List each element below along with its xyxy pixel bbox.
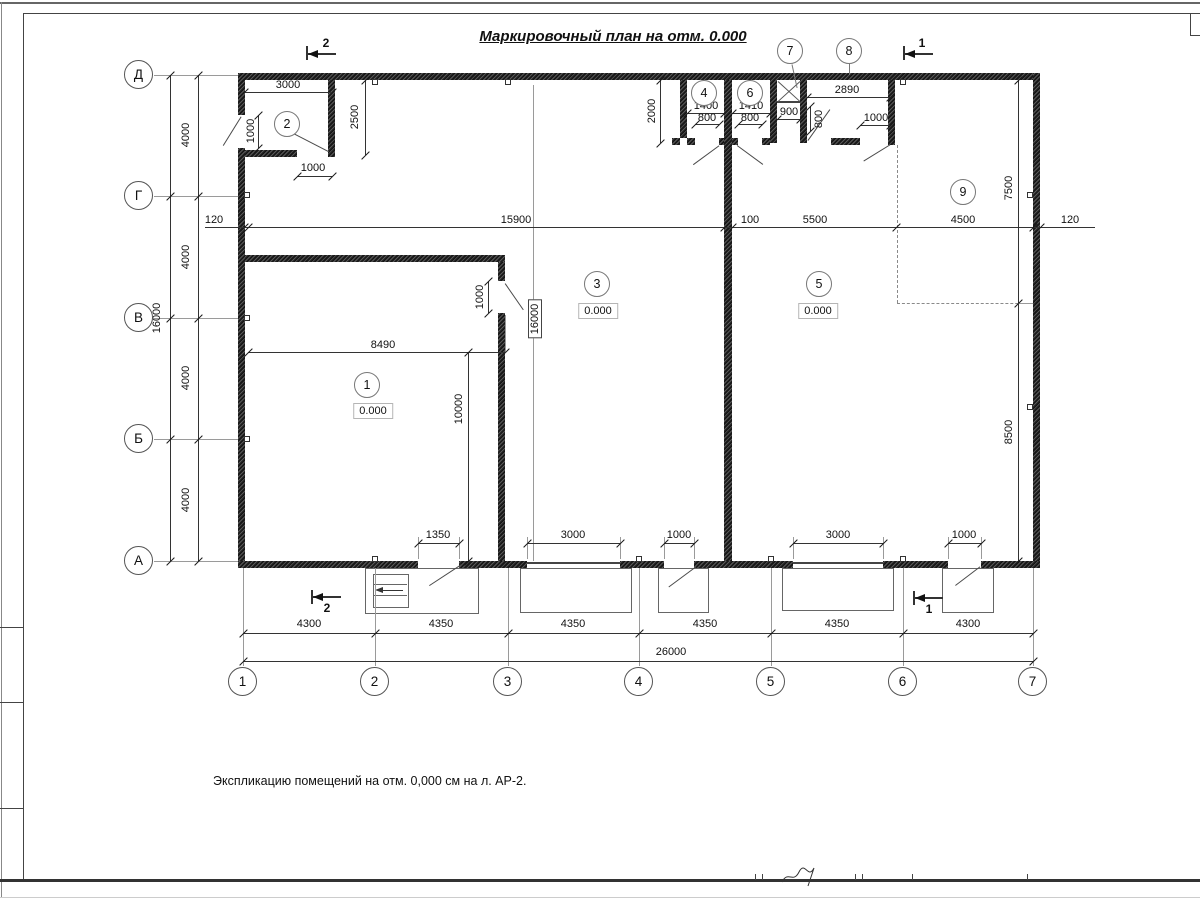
axis-label: 4 [635, 674, 643, 689]
room-number: 2 [284, 117, 291, 131]
dim-line-1000 [860, 125, 890, 126]
axis-circle-col: 4 [624, 667, 653, 696]
wall-room4-bottom [687, 138, 695, 145]
dim-line-1000 [948, 543, 981, 544]
pilaster [244, 436, 250, 442]
axis-label: 7 [1029, 674, 1037, 689]
wall-exterior-bottom [883, 561, 948, 568]
elevation-mark-room5: 0.000 [798, 303, 838, 319]
dim-label: 3000 [561, 529, 585, 541]
door-extension [981, 537, 982, 559]
dim-label: 4000 [180, 245, 192, 269]
dim-line-8500 [1018, 303, 1019, 561]
pilaster [1027, 192, 1033, 198]
dim-label: 4350 [561, 618, 585, 630]
titleblock-tick [912, 874, 913, 880]
room-number: 7 [787, 44, 794, 58]
wall-exterior-bottom [981, 561, 1040, 568]
dim-label: 900 [780, 106, 798, 118]
dim-label: 4350 [429, 618, 453, 630]
axis-circle-row: Г [124, 181, 153, 210]
pilaster [1027, 404, 1033, 410]
room-number: 4 [701, 86, 708, 100]
pilaster [505, 79, 511, 85]
axis-label: Б [134, 431, 143, 446]
room9-dashed-bottom [897, 303, 1033, 304]
door-extension [664, 537, 665, 559]
dim-label: 4000 [180, 123, 192, 147]
stamp-div-2 [0, 702, 23, 703]
axis-label: А [134, 553, 143, 568]
wall-room1-right-lower [498, 313, 505, 561]
dim-label: 4350 [693, 618, 717, 630]
signature-mark [778, 864, 822, 888]
dim-label: 1000 [864, 112, 888, 124]
dim-label: 120 [1061, 214, 1079, 226]
dim-label: 800 [813, 110, 825, 128]
steps-arrow-head [375, 587, 383, 593]
axis-label: 6 [899, 674, 907, 689]
porch [782, 568, 894, 611]
pilaster [900, 556, 906, 562]
section-number: 1 [926, 602, 933, 616]
dim-line-1000 [664, 543, 694, 544]
dim-label: 800 [741, 112, 759, 124]
sheet-edge-bottom [0, 897, 1200, 898]
door-extension [459, 537, 460, 559]
wall-exterior-bottom [238, 561, 418, 568]
axis-circle-col: 6 [888, 667, 917, 696]
steps-arrow-line [381, 590, 403, 591]
axis-circle-col: 2 [360, 667, 389, 696]
axis-circle-col: 3 [493, 667, 522, 696]
dim-line-3000 [793, 543, 883, 544]
dim-label: 2000 [646, 99, 658, 123]
pilaster [372, 79, 378, 85]
sheet-edge-top [0, 2, 1200, 4]
room-number: 1 [364, 378, 371, 392]
pilaster [372, 556, 378, 562]
dim-label: 1000 [245, 119, 257, 143]
dim-label: 4000 [180, 366, 192, 390]
titleblock-tick [762, 874, 763, 880]
dim-line-3000 [244, 92, 332, 93]
axis-label: 1 [239, 674, 247, 689]
dim-line-1000 [297, 176, 332, 177]
room-number: 5 [816, 277, 823, 291]
dim-label: 4500 [951, 214, 975, 226]
room-number: 6 [747, 86, 754, 100]
explication-note: Экспликацию помещений на отм. 0,000 см н… [213, 774, 526, 788]
door-leaf [737, 145, 764, 165]
dim-label: 1000 [301, 162, 325, 174]
dim-line-10000 [468, 352, 469, 561]
wall-exterior-right [1033, 73, 1040, 568]
door-extension [418, 537, 419, 559]
section-arrow-icon [313, 593, 323, 601]
axis-extension [375, 568, 376, 666]
titleblock-tick [862, 874, 863, 880]
titleblock-tick [855, 874, 856, 880]
hall-height-mark: 16000 [528, 300, 542, 339]
axis-extension [243, 568, 244, 666]
storefront-line [527, 562, 620, 564]
wall-exterior-top [238, 73, 1040, 80]
wall-room4-bottom [719, 138, 724, 145]
dim-line-26000 [243, 661, 1033, 662]
elevation-mark-room1: 0.000 [353, 403, 393, 419]
dim-label: 800 [698, 112, 716, 124]
corner-box-v [1190, 13, 1191, 35]
axis-label: 2 [371, 674, 379, 689]
axis-circle-row: В [124, 303, 153, 332]
titleblock-tick [1027, 874, 1028, 880]
room-marker-9: 9 [950, 179, 976, 205]
wall-room4-left-foot [672, 138, 680, 145]
dim-label: 8490 [371, 339, 395, 351]
room-number: 8 [846, 44, 853, 58]
section-arrow-icon [905, 50, 915, 58]
drawing-sheet: Маркировочный план на отм. 0.000 Эксплик… [0, 0, 1200, 900]
dim-label: 10000 [453, 394, 465, 425]
dim-line-3000 [527, 543, 620, 544]
axis-circle-col: 1 [228, 667, 257, 696]
door-leaf [504, 283, 523, 310]
dim-label: 3000 [276, 79, 300, 91]
dim-label: 1000 [667, 529, 691, 541]
dim-label: 26000 [656, 646, 687, 658]
pilaster [636, 556, 642, 562]
door-extension [620, 537, 621, 559]
axis-label: Г [135, 188, 142, 203]
corner-box-h [1190, 35, 1200, 36]
dim-label: 15900 [501, 214, 532, 226]
dim-line-2000 [660, 80, 661, 143]
dim-label: 1350 [426, 529, 450, 541]
frame-left [23, 13, 24, 881]
wall-exterior-bottom [694, 561, 793, 568]
wall-room4-left [680, 80, 687, 138]
dim-line-1000 [258, 115, 259, 148]
porch [520, 568, 632, 613]
wall-room6-bottom [762, 138, 770, 145]
axis-circle-col: 5 [756, 667, 785, 696]
dim-label: 8500 [1003, 420, 1015, 444]
dim-line-row-middle [205, 227, 1095, 228]
section-number: 2 [323, 36, 330, 50]
section-number: 1 [919, 36, 926, 50]
door-leaf [294, 133, 329, 152]
axis-circle-col: 7 [1018, 667, 1047, 696]
dim-line-800 [810, 106, 811, 131]
extension-line [1018, 303, 1033, 304]
axis-label: 5 [767, 674, 775, 689]
wall-exterior-bottom [620, 561, 664, 568]
room-marker-1: 1 [354, 372, 380, 398]
door-leaf [693, 145, 720, 165]
dim-label: 4000 [180, 488, 192, 512]
axis-label: Д [134, 67, 143, 82]
door-leaf [863, 144, 890, 161]
wall-central [724, 80, 732, 561]
room-number: 3 [594, 277, 601, 291]
wall-exterior-bottom [459, 561, 527, 568]
dim-label: 5500 [803, 214, 827, 226]
porch-step-line [373, 584, 407, 585]
dim-label: 7500 [1003, 176, 1015, 200]
dim-line-2890 [807, 97, 890, 98]
pilaster [768, 556, 774, 562]
door-extension [527, 537, 528, 559]
section-arrow-icon [308, 50, 318, 58]
wall-room1-right-upper [498, 262, 505, 281]
door-extension [694, 537, 695, 559]
dim-label: 4350 [825, 618, 849, 630]
stamp-div-1 [0, 627, 23, 628]
titleblock-tick [755, 874, 756, 880]
axis-extension [771, 568, 772, 666]
door-extension [948, 537, 949, 559]
dim-line-2500 [365, 80, 366, 155]
dim-label: 120 [205, 214, 223, 226]
room-marker-2: 2 [274, 111, 300, 137]
pilaster [244, 315, 250, 321]
dim-line-7500 [1018, 80, 1019, 303]
section-number: 2 [324, 601, 331, 615]
dim-label: 2500 [349, 105, 361, 129]
dim-line-800 [738, 124, 762, 125]
axis-extension [903, 568, 904, 666]
dim-label: 4300 [297, 618, 321, 630]
axis-circle-row: Д [124, 60, 153, 89]
extension-line [505, 315, 506, 352]
frame-top [23, 13, 1200, 14]
wall-room2-bottom [245, 150, 297, 157]
wall-exterior-left-lower [238, 148, 245, 568]
room-marker-3: 3 [584, 271, 610, 297]
elevation-mark-room3: 0.000 [578, 303, 618, 319]
dim-label: 3000 [826, 529, 850, 541]
sheet-edge-left [1, 2, 2, 898]
door-leaf [223, 116, 242, 146]
wall-room1-top [245, 255, 505, 262]
drawing-title: Маркировочный план на отм. 0.000 [479, 28, 746, 45]
dim-label: 1000 [474, 285, 486, 309]
dim-line-800 [695, 124, 719, 125]
axis-circle-row: А [124, 546, 153, 575]
dim-line-1000 [488, 281, 489, 313]
dim-label: 4300 [956, 618, 980, 630]
stamp-div-3 [0, 808, 23, 809]
wall-room8-right [888, 80, 895, 145]
dim-label: 1000 [952, 529, 976, 541]
pilaster [900, 79, 906, 85]
axis-extension [1033, 568, 1034, 666]
axis-extension [508, 568, 509, 666]
room8-leader [849, 64, 850, 75]
door-extension [793, 537, 794, 559]
room-marker-4: 4 [691, 80, 717, 106]
frame-bottom [0, 879, 1200, 882]
dim-line-1350 [418, 543, 459, 544]
dim-line-900 [777, 119, 800, 120]
door-extension [883, 537, 884, 559]
shaft-bottom-line [777, 101, 800, 103]
dim-label: 100 [741, 214, 759, 226]
axis-extension [639, 568, 640, 666]
axis-label: 3 [504, 674, 512, 689]
axis-circle-row: Б [124, 424, 153, 453]
axis-label: В [134, 310, 143, 325]
room-marker-8: 8 [836, 38, 862, 64]
room-marker-7: 7 [777, 38, 803, 64]
section-arrow-icon [915, 594, 925, 602]
wall-room8-bottom [831, 138, 860, 145]
room-marker-6: 6 [737, 80, 763, 106]
room-marker-5: 5 [806, 271, 832, 297]
storefront-line [793, 562, 883, 564]
room-number: 9 [960, 185, 967, 199]
dim-label: 2890 [835, 84, 859, 96]
porch-step-line [373, 595, 407, 596]
pilaster [244, 192, 250, 198]
